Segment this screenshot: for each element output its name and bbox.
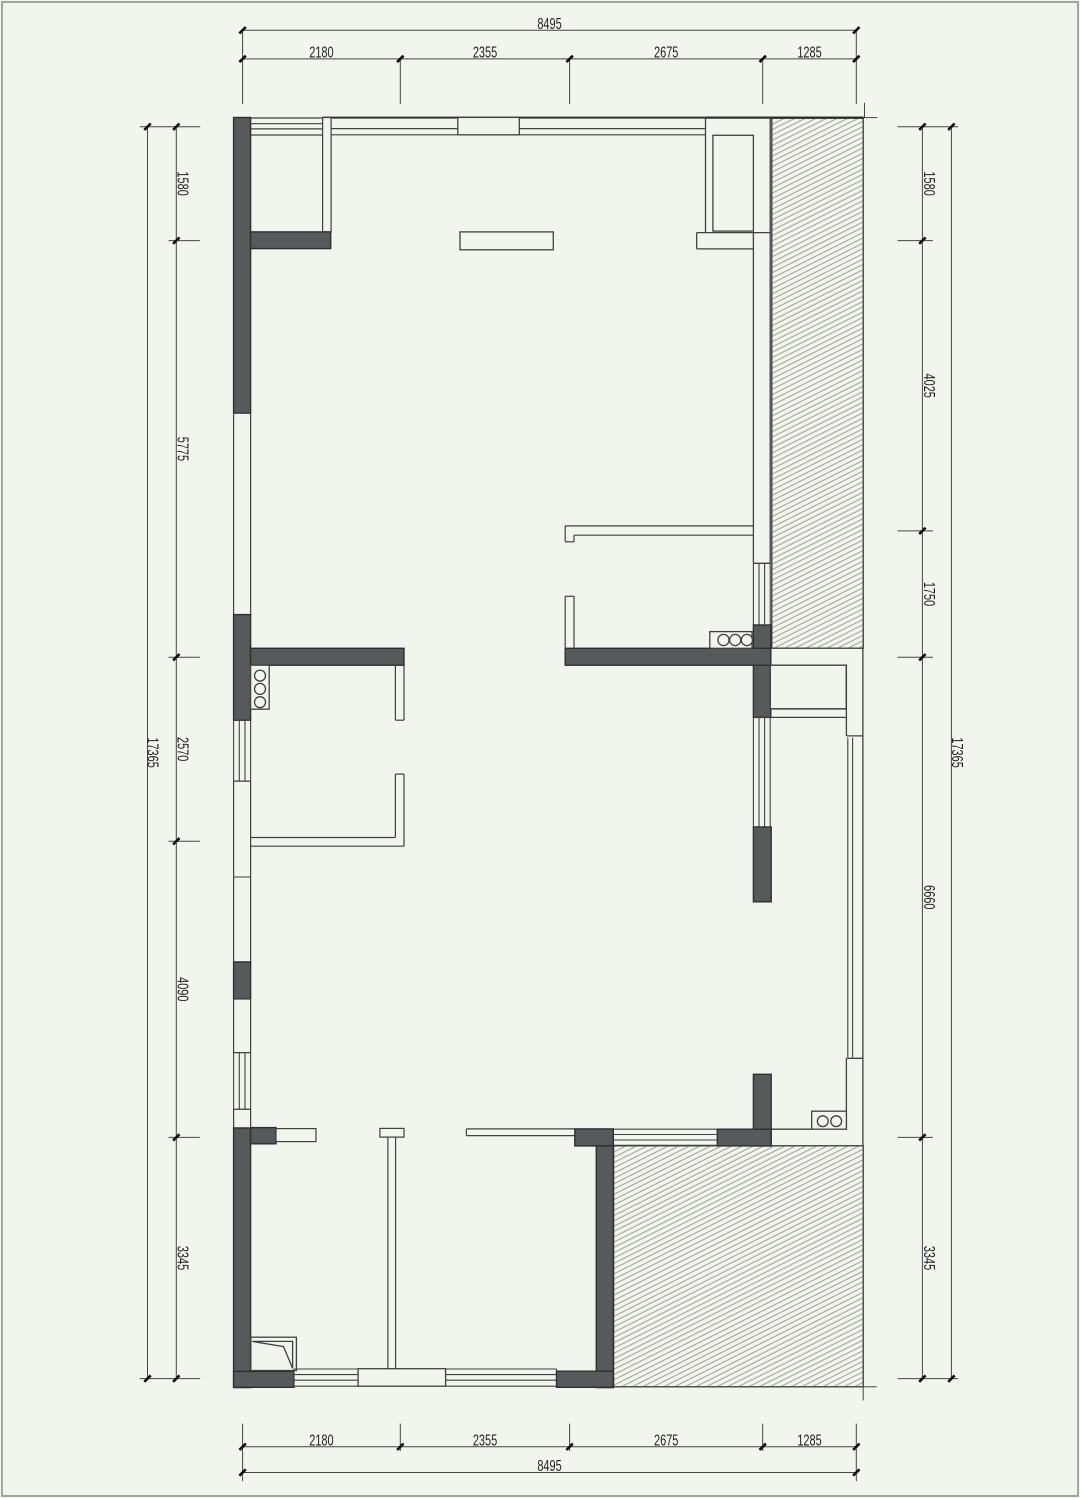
svg-text:1580: 1580 bbox=[174, 171, 192, 196]
svg-text:2675: 2675 bbox=[654, 1431, 679, 1449]
svg-text:4025: 4025 bbox=[921, 374, 939, 399]
svg-text:1285: 1285 bbox=[797, 44, 822, 62]
svg-text:2570: 2570 bbox=[174, 737, 192, 762]
svg-text:2675: 2675 bbox=[654, 44, 679, 62]
svg-text:1750: 1750 bbox=[921, 582, 939, 607]
svg-text:1285: 1285 bbox=[797, 1431, 822, 1449]
svg-text:6660: 6660 bbox=[921, 885, 939, 910]
svg-text:17365: 17365 bbox=[144, 737, 162, 768]
svg-text:8495: 8495 bbox=[537, 15, 562, 33]
svg-text:2355: 2355 bbox=[473, 44, 498, 62]
svg-text:2180: 2180 bbox=[309, 1431, 334, 1449]
svg-text:1580: 1580 bbox=[921, 171, 939, 196]
svg-text:3345: 3345 bbox=[921, 1246, 939, 1271]
svg-text:3345: 3345 bbox=[174, 1246, 192, 1271]
svg-text:2180: 2180 bbox=[309, 44, 334, 62]
svg-text:2355: 2355 bbox=[473, 1431, 498, 1449]
svg-text:17365: 17365 bbox=[948, 737, 966, 768]
svg-text:4090: 4090 bbox=[174, 977, 192, 1002]
svg-text:5775: 5775 bbox=[174, 437, 192, 462]
svg-text:8495: 8495 bbox=[537, 1457, 562, 1475]
